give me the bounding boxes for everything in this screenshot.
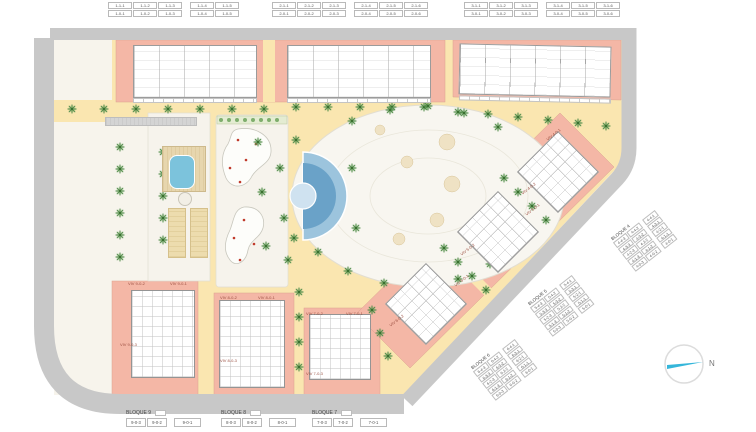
palm-tree-icon <box>132 105 141 114</box>
flower-icon <box>243 219 246 222</box>
sunbed-mat <box>168 208 186 258</box>
building-block-1 <box>133 45 257 98</box>
unit-cell: 2-0-4 <box>354 10 378 17</box>
empty-cell <box>155 410 166 416</box>
unit-cell: 9-0-1 <box>174 418 201 427</box>
top-left-court <box>54 40 112 100</box>
unit-cell: 7-0-3 <box>312 418 332 427</box>
palm-tree-icon <box>356 103 365 112</box>
unit-cell: 3-1-2 <box>489 2 513 9</box>
palm-tree-icon <box>384 352 393 361</box>
unit-cell: 8-0-3 <box>221 418 241 427</box>
unit-table-bloque-8: BLOQUE 88-0-38-0-28-0-1 <box>221 410 296 427</box>
palm-tree-icon <box>116 231 125 240</box>
palm-tree-icon <box>116 165 125 174</box>
unit-label: VIV 9-0-3 <box>120 342 137 347</box>
compass-needle-icon <box>660 342 730 390</box>
palm-tree-icon <box>295 288 304 297</box>
table-title: BLOQUE 7 <box>312 410 337 416</box>
unit-label: VIV 8-0-2 <box>220 295 237 300</box>
palm-tree-icon <box>196 105 205 114</box>
unit-cell: 2-1-5 <box>379 2 403 9</box>
palm-tree-icon <box>116 253 125 262</box>
unit-label: VIV 7-0-1 <box>346 311 363 316</box>
palm-tree-icon <box>292 136 301 145</box>
flower-icon <box>245 159 248 162</box>
unit-cell: 7-0-1 <box>360 418 387 427</box>
palm-tree-icon <box>290 234 299 243</box>
flower-icon <box>233 237 236 240</box>
pergola-row <box>105 117 197 126</box>
unit-cell: 2-1-4 <box>354 2 378 9</box>
palm-tree-icon <box>284 256 293 265</box>
palm-tree-icon <box>260 105 269 114</box>
palm-tree-icon <box>314 248 323 257</box>
unit-cell: 2-0-1 <box>272 10 296 17</box>
sunbed-mat <box>190 208 208 258</box>
unit-cell: 1-0-2 <box>133 10 157 17</box>
unit-cell: 1-0-4 <box>190 10 214 17</box>
palm-tree-icon <box>100 105 109 114</box>
path-gap-top <box>263 40 275 102</box>
palm-tree-icon <box>348 164 357 173</box>
unit-label: VIV 9-0-2 <box>128 281 145 286</box>
unit-cell: 1-1-3 <box>158 2 182 9</box>
unit-table-block-3: 3-1-13-1-23-1-33-1-43-1-53-1-63-0-13-0-2… <box>464 2 620 17</box>
palm-tree-icon <box>602 122 611 131</box>
flower-icon <box>253 243 256 246</box>
palm-tree-icon <box>344 267 353 276</box>
pool-hub <box>290 183 316 209</box>
unit-cell: 3-0-2 <box>489 10 513 17</box>
palm-tree-icon <box>164 105 173 114</box>
palm-tree-icon <box>574 119 583 128</box>
flower-icon <box>239 181 242 184</box>
unit-cell: 3-1-3 <box>514 2 538 9</box>
unit-cell: 3-1-5 <box>571 2 595 9</box>
empty-cell <box>250 410 261 416</box>
palm-tree-icon <box>295 338 304 347</box>
palm-tree-icon <box>68 105 77 114</box>
unit-label: VIV 9-0-1 <box>170 281 187 286</box>
unit-cell: 2-1-2 <box>297 2 321 9</box>
palm-tree-icon <box>262 242 271 251</box>
unit-label: VIV 7-0-3 <box>306 371 323 376</box>
palm-tree-icon <box>116 143 125 152</box>
palm-tree-icon <box>295 313 304 322</box>
unit-cell: 2-0-2 <box>297 10 321 17</box>
unit-cell: 2-0-6 <box>404 10 428 17</box>
palm-tree-icon <box>494 123 503 132</box>
building-block-2 <box>287 45 431 98</box>
hedge-plant-icon <box>275 118 279 122</box>
palm-tree-icon <box>544 116 553 125</box>
building-block-2-terraces <box>287 98 431 103</box>
palm-tree-icon <box>440 244 449 253</box>
hedge-plant-icon <box>259 118 263 122</box>
unit-cell: 9-0-3 <box>126 418 146 427</box>
palm-tree-icon <box>116 187 125 196</box>
palm-tree-icon <box>254 138 263 147</box>
site-plan-page: 1-1-11-1-21-1-31-1-41-1-51-0-11-0-21-0-3… <box>0 0 756 432</box>
table-title: BLOQUE 9 <box>126 410 151 416</box>
palm-tree-icon <box>542 216 551 225</box>
hedge-plant-icon <box>243 118 247 122</box>
unit-cell: 2-1-3 <box>322 2 346 9</box>
palm-tree-icon <box>276 164 285 173</box>
unit-cell: 8-0-2 <box>242 418 262 427</box>
building-block-3 <box>458 43 611 97</box>
palm-tree-icon <box>295 363 304 372</box>
palm-tree-icon <box>482 286 491 295</box>
hedge-plant-icon <box>219 118 223 122</box>
palm-tree-icon <box>454 258 463 267</box>
unit-cell: 3-0-4 <box>546 10 570 17</box>
palm-tree-icon <box>460 109 469 118</box>
palm-tree-icon <box>380 279 389 288</box>
unit-cell: 1-1-2 <box>133 2 157 9</box>
unit-cell: 1-0-5 <box>215 10 239 17</box>
unit-table-block-1: 1-1-11-1-21-1-31-1-41-1-51-0-11-0-21-0-3… <box>108 2 239 17</box>
unit-table-block-2: 2-1-12-1-22-1-32-1-42-1-52-1-62-0-12-0-2… <box>272 2 428 17</box>
spa-pool <box>169 155 195 189</box>
unit-cell: 1-1-1 <box>108 2 132 9</box>
palm-tree-icon <box>159 214 168 223</box>
flower-icon <box>237 139 240 142</box>
unit-cell: 8-0-1 <box>269 418 296 427</box>
building-block-1-terraces <box>133 98 257 103</box>
palm-tree-icon <box>228 105 237 114</box>
unit-cell: 7-0-2 <box>333 418 353 427</box>
palm-tree-icon <box>280 214 289 223</box>
palm-tree-icon <box>159 236 168 245</box>
unit-cell: 2-0-3 <box>322 10 346 17</box>
building-bloque-8 <box>219 300 285 388</box>
unit-table-bloque-7: BLOQUE 77-0-37-0-27-0-1 <box>312 410 387 427</box>
north-label: N <box>709 359 715 368</box>
round-seat <box>178 192 192 206</box>
palm-tree-icon <box>116 209 125 218</box>
building-bloque-9 <box>131 290 195 378</box>
flower-icon <box>239 259 242 262</box>
flower-icon <box>229 167 232 170</box>
unit-cell: 2-1-6 <box>404 2 428 9</box>
hedge-plant-icon <box>235 118 239 122</box>
unit-cell: 3-1-1 <box>464 2 488 9</box>
north-compass: N <box>660 342 730 390</box>
unit-cell: 1-0-3 <box>158 10 182 17</box>
unit-label: VIV 8-0-3 <box>220 358 237 363</box>
unit-label: VIV 7-0-2 <box>306 311 323 316</box>
palm-tree-icon <box>514 113 523 122</box>
palm-tree-icon <box>386 106 395 115</box>
palm-tree-icon <box>348 117 357 126</box>
unit-cell: 3-0-6 <box>596 10 620 17</box>
palm-tree-icon <box>484 110 493 119</box>
empty-cell <box>341 410 352 416</box>
unit-cell: 9-0-2 <box>147 418 167 427</box>
unit-cell: 1-1-5 <box>215 2 239 9</box>
palm-tree-icon <box>352 224 361 233</box>
unit-cell: 3-1-6 <box>596 2 620 9</box>
palm-tree-icon <box>376 329 385 338</box>
hedge-plant-icon <box>267 118 271 122</box>
palm-tree-icon <box>324 103 333 112</box>
unit-label: VIV 8-0-1 <box>258 295 275 300</box>
unit-cell: 3-1-4 <box>546 2 570 9</box>
palm-tree-icon <box>258 188 267 197</box>
unit-cell: 3-0-5 <box>571 10 595 17</box>
palm-tree-icon <box>292 103 301 112</box>
unit-cell: 1-1-4 <box>190 2 214 9</box>
hedge-plant-icon <box>227 118 231 122</box>
unit-cell: 2-0-5 <box>379 10 403 17</box>
palm-tree-icon <box>500 174 509 183</box>
palm-tree-icon <box>159 192 168 201</box>
unit-cell: 3-0-1 <box>464 10 488 17</box>
unit-cell: 1-0-1 <box>108 10 132 17</box>
unit-cell: 3-0-3 <box>514 10 538 17</box>
table-title: BLOQUE 8 <box>221 410 246 416</box>
unit-cell: 2-1-1 <box>272 2 296 9</box>
unit-table-bloque-9: BLOQUE 99-0-39-0-29-0-1 <box>126 410 201 427</box>
hedge-plant-icon <box>251 118 255 122</box>
